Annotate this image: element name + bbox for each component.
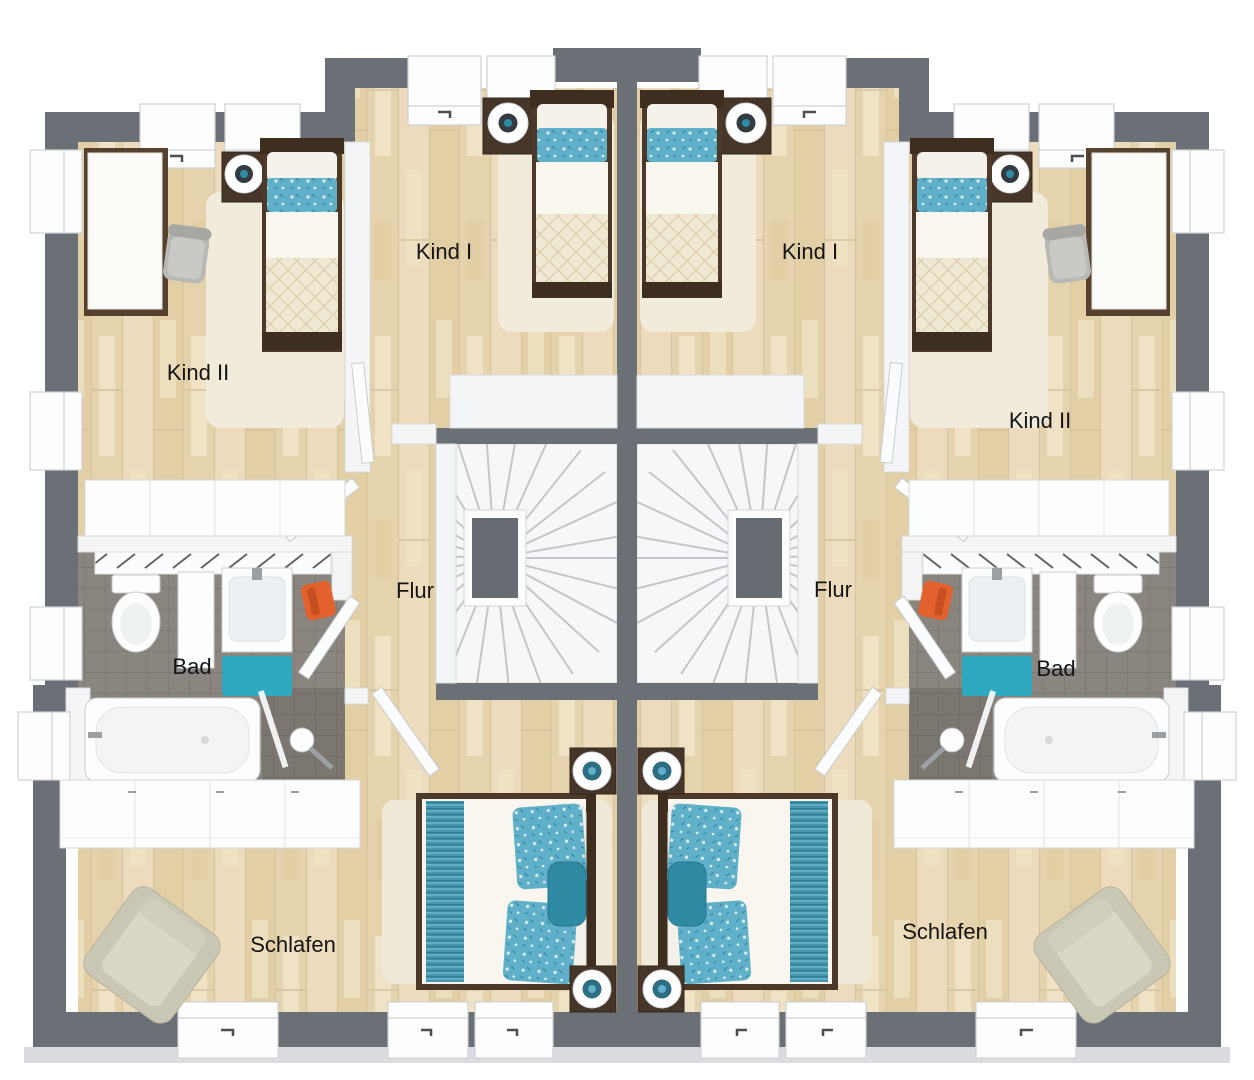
room-label-kind2-right: Kind II <box>1009 408 1071 433</box>
room-label-schlafen-right: Schlafen <box>902 919 988 944</box>
room-label-kind1-left: Kind I <box>416 239 472 264</box>
house-unit-right-mirrored <box>619 48 1236 1058</box>
floor-plan-page: Kind I Kind II Flur Bad Schlafen Kind I … <box>0 0 1254 1080</box>
room-label-bad-left: Bad <box>172 654 211 679</box>
room-label-bad-right: Bad <box>1036 656 1075 681</box>
room-label-flur-right: Flur <box>814 577 852 602</box>
room-label-kind2-left: Kind II <box>167 360 229 385</box>
floor-plan-canvas: Kind I Kind II Flur Bad Schlafen Kind I … <box>0 0 1254 1080</box>
house-unit-left <box>18 48 635 1058</box>
room-label-flur-left: Flur <box>396 578 434 603</box>
room-label-schlafen-left: Schlafen <box>250 932 336 957</box>
room-label-kind1-right: Kind I <box>782 239 838 264</box>
